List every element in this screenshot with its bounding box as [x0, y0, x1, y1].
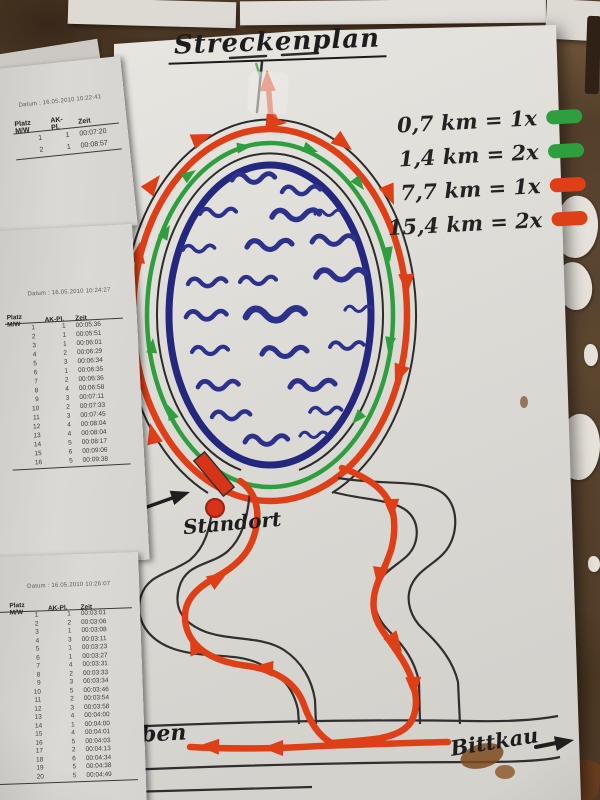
lake-wave-mark: [240, 277, 276, 284]
date-value: 16.05.2010 10:22:41: [42, 94, 101, 106]
cell-zeit: 00:09:38: [81, 454, 131, 464]
cell-ak: 5: [52, 772, 85, 780]
cell-platz: 12: [11, 705, 50, 713]
cell-platz: 18: [13, 756, 52, 764]
cell-cutoff-fragment: [0, 761, 13, 762]
cell-ak: 5: [50, 457, 81, 466]
cell-cutoff-fragment: [0, 744, 12, 745]
route-arrow: [262, 740, 283, 756]
lake-wave-mark: [246, 308, 305, 320]
cell-ak: 4: [48, 661, 81, 669]
brown-speck: [520, 396, 528, 408]
red-route-left-corridor: [185, 481, 330, 742]
lake-wave-mark: [290, 380, 335, 389]
cell-zeit: 00:08:57: [78, 138, 121, 149]
cell-ak: 1: [48, 653, 81, 661]
cell-cutoff-fragment: 8: [0, 672, 10, 680]
corkboard-photo: Streckenplan 0,7 km = 1x 1,4 km = 2x 7,7…: [0, 0, 600, 800]
cell-ak: 4: [50, 712, 83, 720]
cell-platz: 16: [12, 459, 50, 468]
cell-cutoff-fragment: 19: [0, 698, 11, 706]
cell-platz: 5: [9, 645, 48, 653]
lake-wave-mark: [247, 240, 292, 249]
cell-cutoff-fragment: 10: [0, 689, 11, 697]
cell-platz: 10: [10, 688, 49, 696]
lake-wave-mark: [200, 209, 236, 216]
lake-wave-mark: [316, 270, 366, 280]
cell-ak: 3: [49, 704, 82, 712]
cell-platz: 3: [8, 628, 47, 636]
cell-ak: 1: [47, 627, 80, 635]
lake-wave-mark: [232, 174, 275, 183]
cell-cutoff-fragment: V57: [0, 749, 13, 757]
route-arrow: [398, 274, 415, 296]
lake-wave-mark: [245, 436, 288, 445]
brown-stain: [495, 765, 515, 779]
cell-platz: 2: [8, 620, 47, 628]
cell-cutoff-fragment: 8: [0, 681, 10, 689]
lake-wave-mark: [192, 347, 228, 354]
table-body: 1 1 00:03:01 2 2 00:03:06 3 1 00:03:08 4: [0, 608, 138, 783]
cell-ak: 6: [51, 755, 84, 763]
cell-cutoff-fragment: [0, 633, 8, 634]
cell-cutoff-fragment: 0: [0, 664, 10, 672]
cell-platz: 1: [8, 611, 47, 619]
cell-cutoff-fragment: 99: [0, 706, 11, 714]
date-value: 16.05.2010 10:26:07: [51, 581, 110, 589]
lake-wave-mark: [312, 236, 355, 245]
cell-platz: 8: [10, 671, 49, 679]
cell-ak: 2: [48, 670, 81, 678]
result-sheet-2: Datum : 16.05.2010 10:24:27 Platz M/W AK…: [0, 224, 150, 568]
cell-ak: 5: [51, 738, 84, 746]
cell-cutoff-fragment: V8: [0, 715, 12, 723]
cell-ak: 1: [46, 610, 79, 618]
cell-ak: 5: [49, 687, 82, 695]
results-table: Platz M/W AK-Pl. Zeit 1 1 00:05:36 2 1 0…: [5, 309, 131, 471]
cell-ak: 2: [51, 746, 84, 754]
cell-ak: 2: [46, 619, 79, 627]
start-pointer-arrow-shaft: [147, 497, 175, 507]
cell-platz: 17: [12, 747, 51, 755]
date-label: Datum :: [27, 290, 50, 297]
lake-wave-mark: [212, 411, 250, 419]
lake-wave-mark: [183, 245, 215, 251]
cell-platz: 6: [9, 654, 48, 662]
tape-patch: [247, 71, 289, 115]
date-value: 16.05.2010 10:24:27: [52, 287, 111, 296]
cell-platz: 15: [12, 730, 51, 738]
cell-cutoff-fragment: 1: [0, 655, 9, 663]
lake-wave-mark: [188, 278, 226, 286]
cell-cutoff-fragment: 89: [0, 774, 14, 782]
table-body: 1 1 00:05:36 2 1 00:05:51 3 1 00:06:01 4…: [5, 319, 130, 469]
results-table: Platz M/W AK-Pl. Zeit 1 1 00:07:20 2 1 0…: [12, 111, 121, 161]
cell-ak: 5: [52, 763, 85, 771]
red-route-bottom-road: [190, 742, 448, 748]
cell-platz: 16: [12, 739, 51, 747]
result-sheet-1: Datum : 16.05.2010 10:22:41 Platz M/W AK…: [0, 56, 138, 241]
lake-wave-mark: [272, 210, 319, 220]
cell-platz: 7: [9, 662, 48, 670]
cell-zeit: 00:04:49: [84, 770, 137, 779]
lake-wave-mark: [186, 311, 227, 319]
cell-cutoff-fragment: 57: [0, 766, 13, 774]
column-header-cutoff: [0, 610, 8, 611]
sheet-date: Datum : 16.05.2010 10:22:41: [18, 94, 101, 109]
cell-platz: 20: [13, 773, 52, 781]
cell-ak: 3: [47, 636, 80, 644]
lake-wave-mark: [262, 347, 307, 356]
lake-wave-mark: [300, 432, 327, 437]
lake-wave-mark: [282, 186, 320, 194]
cell-cutoff-fragment: [0, 616, 8, 617]
date-label: Datum :: [27, 583, 50, 590]
lake-wave-mark: [198, 381, 239, 389]
cell-platz: 9: [10, 679, 49, 687]
cell-cutoff-fragment: [0, 642, 9, 643]
standort-marker-dot: [206, 499, 224, 517]
cell-ak: 3: [49, 678, 82, 686]
start-pointer-arrow-head: [170, 485, 193, 505]
sheet-date: Datum : 16.05.2010 10:26:07: [27, 581, 110, 590]
route-arrow: [198, 738, 220, 755]
bittkau-arrow-head: [554, 733, 576, 751]
cell-ak: 2: [49, 695, 82, 703]
cell-platz: 13: [11, 713, 50, 721]
cell-ak: 1: [50, 130, 78, 140]
sheet-date: Datum : 16.05.2010 10:24:27: [27, 287, 110, 297]
cell-cutoff-fragment: 9: [0, 647, 9, 655]
cell-platz: 11: [11, 696, 50, 704]
result-sheet-3: Datum : 16.05.2010 10:26:07 Platz M/W AK…: [0, 552, 147, 800]
lake-wave-mark: [330, 342, 364, 349]
results-table: Platz M/W AK-Pl. Zeit 1 1 00:03:01 2 2 0…: [0, 598, 138, 785]
lake-wave-mark: [310, 407, 342, 413]
cell-ak: 1: [51, 142, 79, 152]
cell-platz: 14: [12, 722, 51, 730]
cell-platz: 19: [13, 764, 52, 772]
route-arrow: [383, 499, 400, 521]
date-label: Datum :: [18, 101, 41, 109]
cell-ak: 1: [50, 721, 83, 729]
cell-ak: 4: [50, 729, 83, 737]
cell-cutoff-fragment: 57: [0, 723, 12, 731]
cell-ak: 1: [47, 644, 80, 652]
column-header-ak: AK-Pl.: [48, 115, 77, 132]
cell-platz: 2: [15, 145, 52, 156]
cell-platz: 4: [9, 637, 48, 645]
cell-cutoff-fragment: [0, 625, 8, 626]
cell-cutoff-fragment: V9: [0, 732, 12, 740]
